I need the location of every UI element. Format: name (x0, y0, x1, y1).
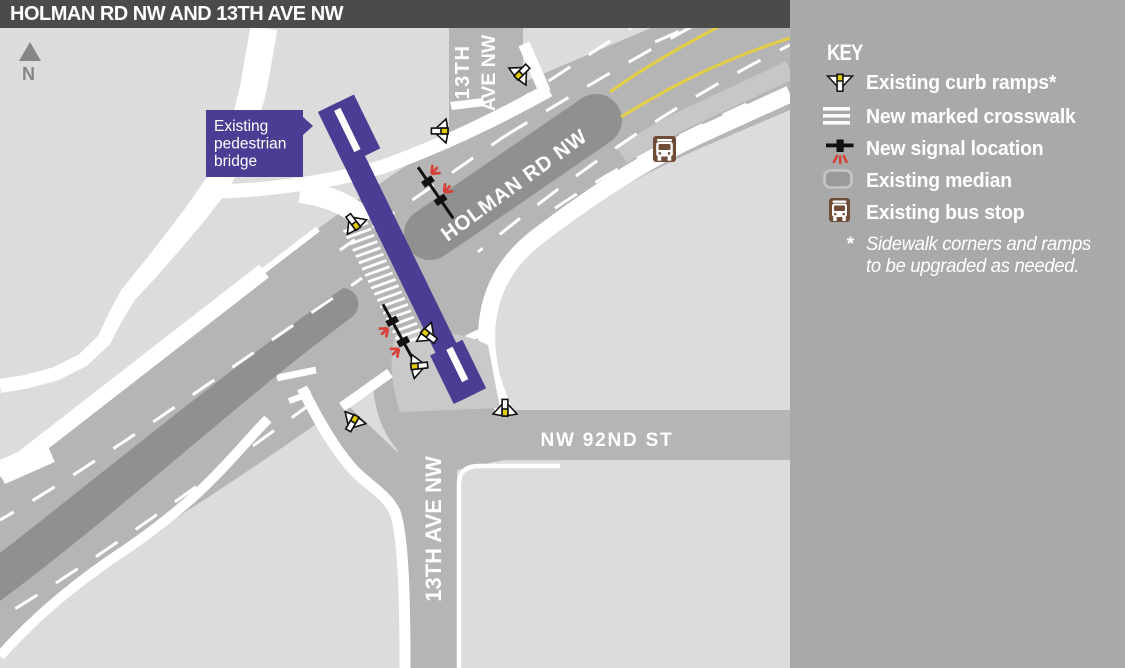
svg-text:13TH AVE NW: 13TH AVE NW (421, 456, 446, 602)
svg-text:bridge: bridge (214, 153, 257, 170)
svg-text:N: N (22, 64, 35, 84)
svg-text:pedestrian: pedestrian (214, 136, 286, 153)
svg-text:AVE NW: AVE NW (478, 34, 500, 111)
svg-text:NW 92ND ST: NW 92ND ST (540, 430, 673, 451)
svg-text:Existing: Existing (214, 118, 268, 135)
svg-text:13TH: 13TH (452, 45, 474, 100)
